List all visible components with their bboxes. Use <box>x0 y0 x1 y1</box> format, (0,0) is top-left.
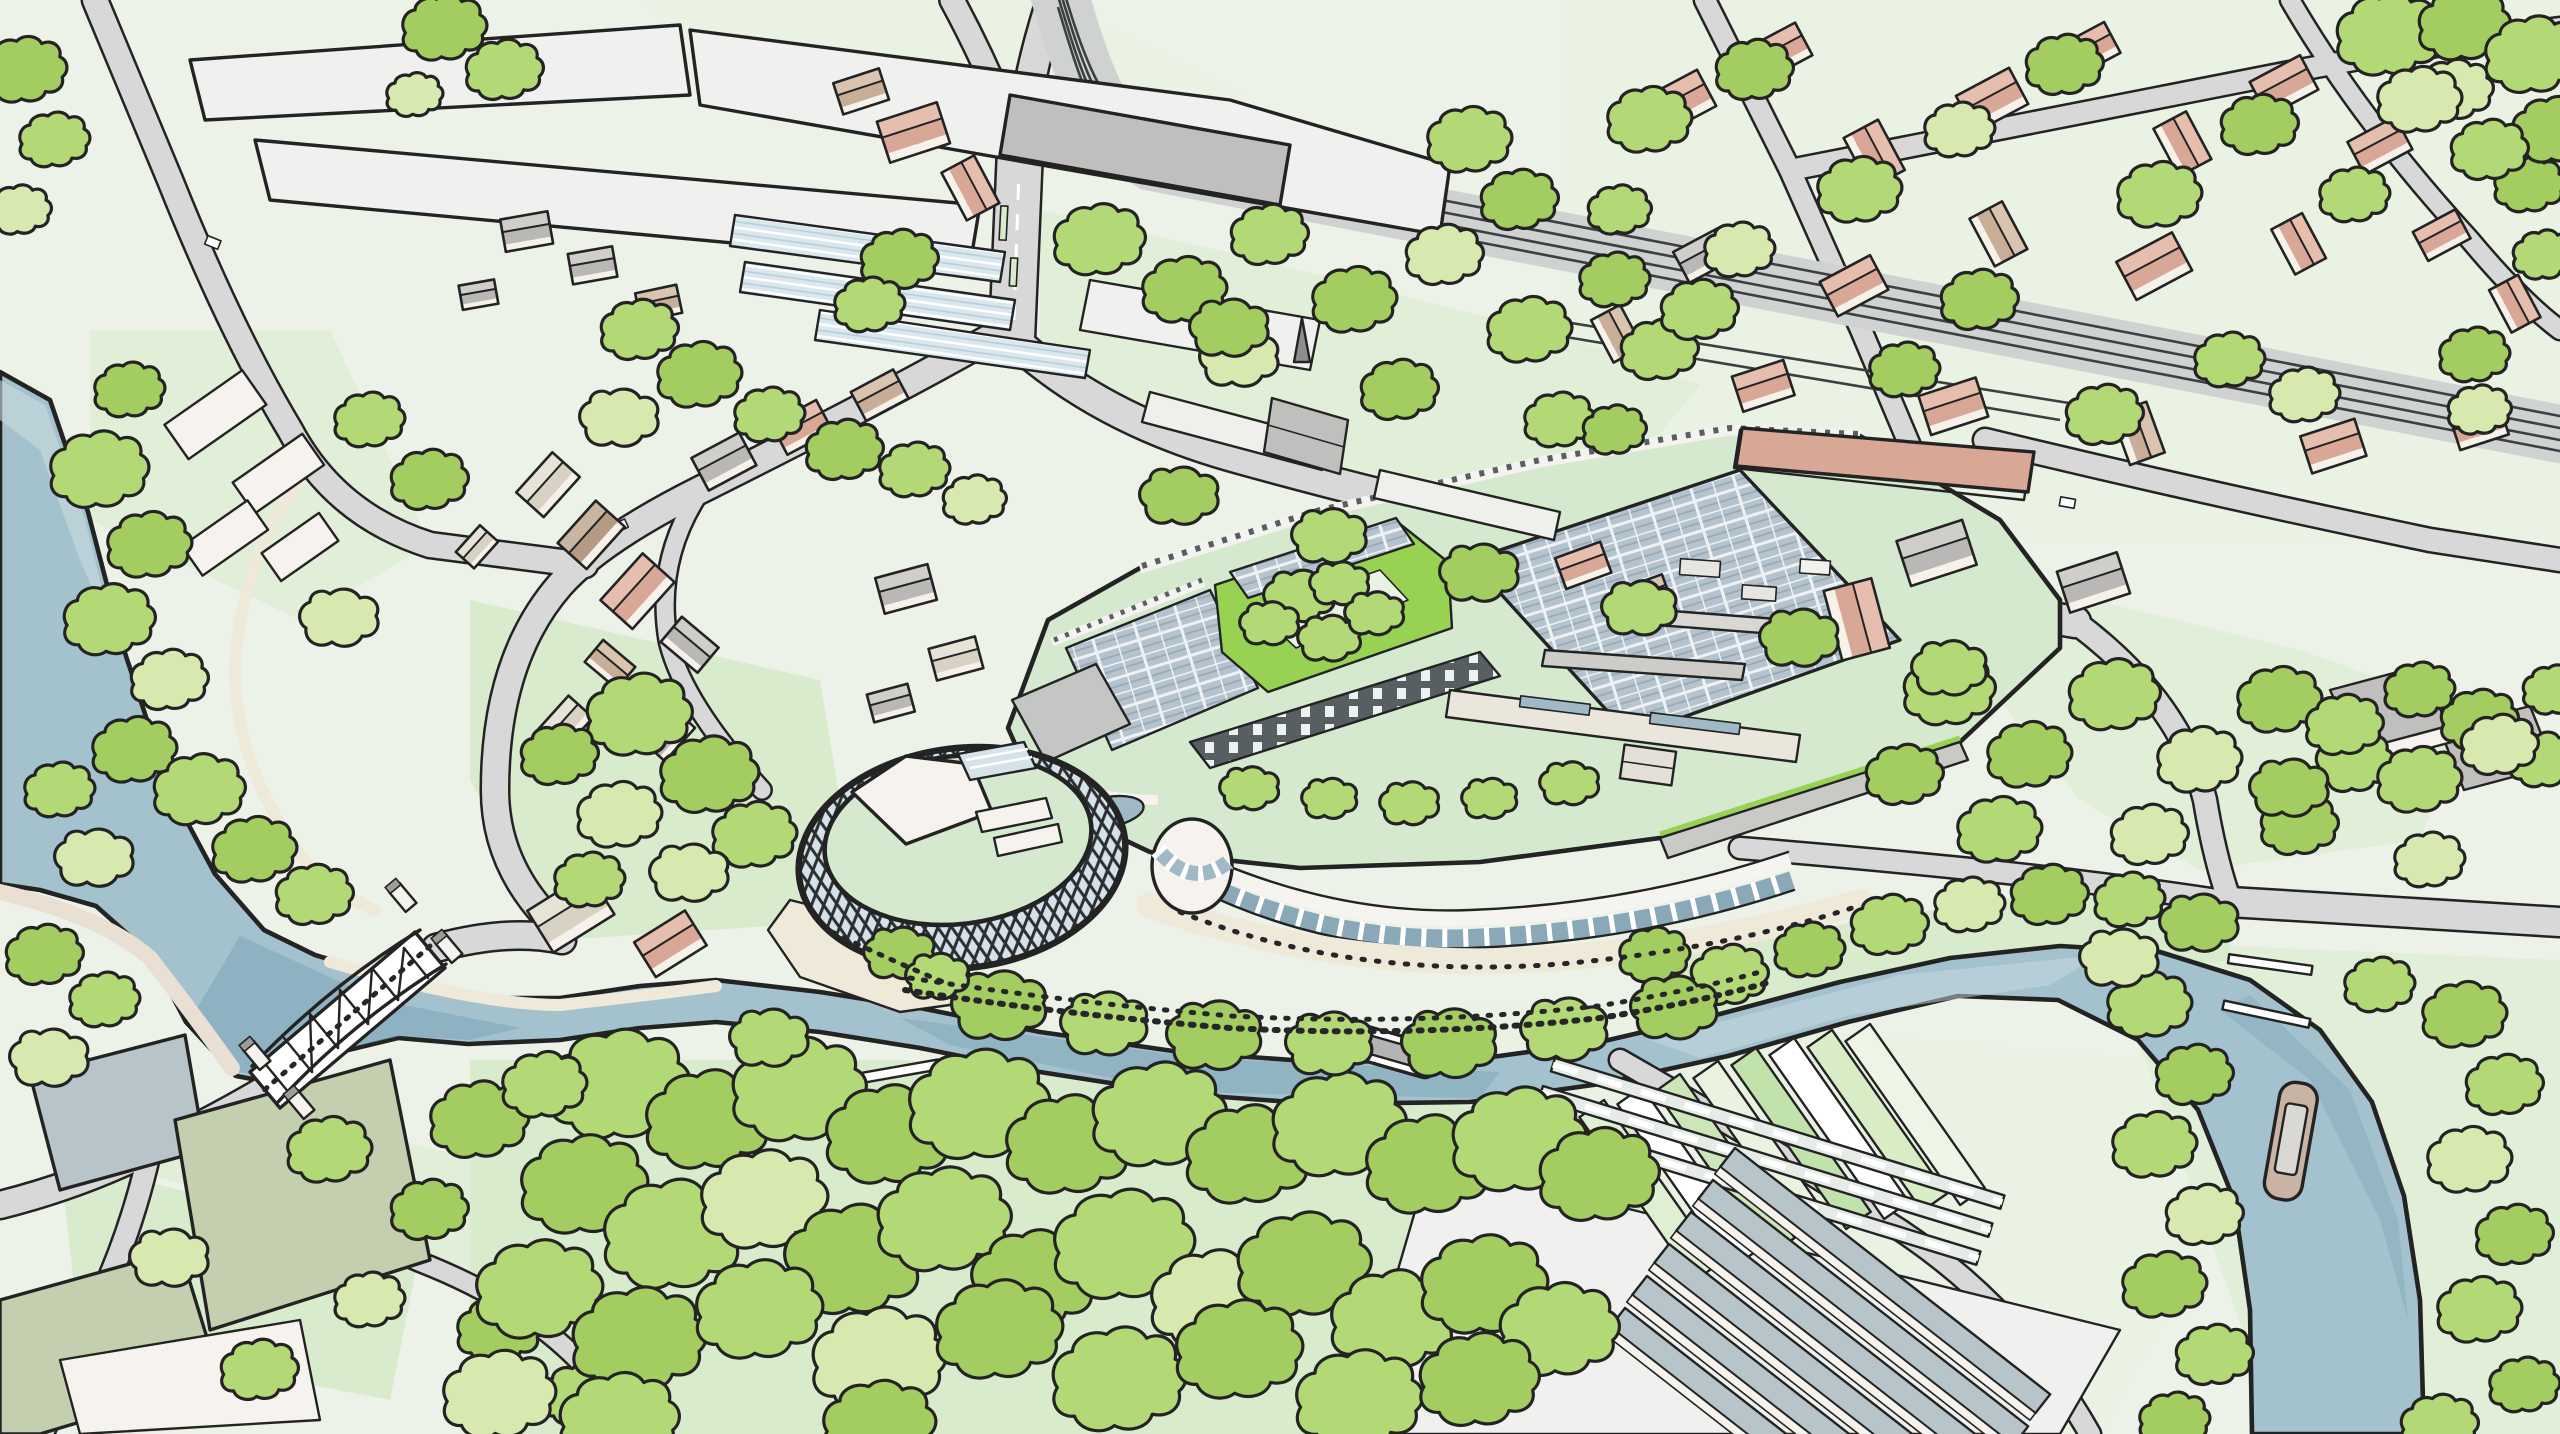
rotunda <box>1152 819 1232 913</box>
aerial-masterplan-illustration <box>0 0 2560 1434</box>
small-pavilion <box>1620 745 1676 786</box>
